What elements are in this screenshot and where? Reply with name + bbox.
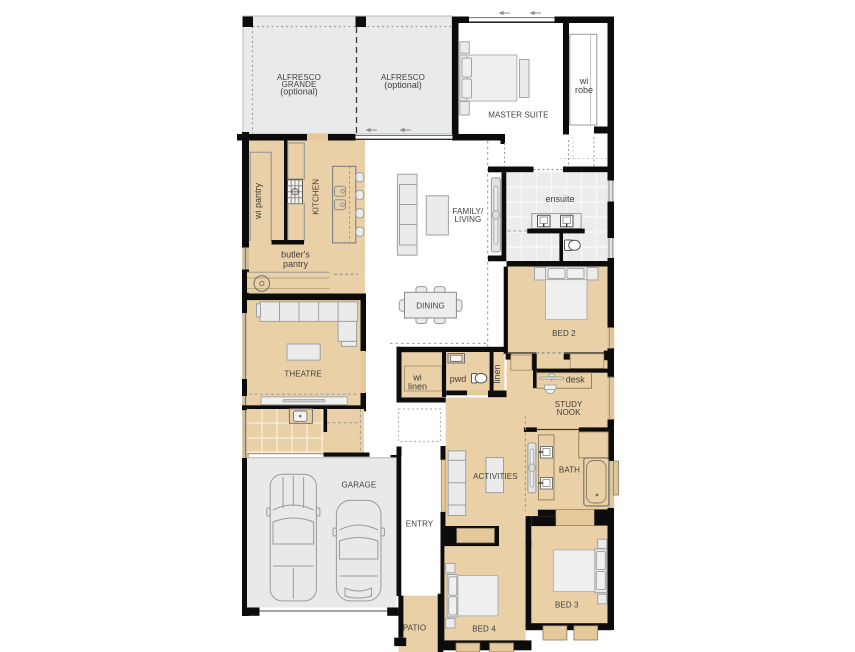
svg-text:linen: linen: [408, 382, 427, 392]
svg-text:ensuite: ensuite: [545, 194, 574, 204]
svg-text:KITCHEN: KITCHEN: [311, 179, 320, 215]
svg-text:ACTIVITIES: ACTIVITIES: [473, 472, 518, 481]
svg-text:MASTER SUITE: MASTER SUITE: [488, 111, 548, 120]
svg-text:GARAGE: GARAGE: [341, 480, 376, 489]
svg-text:(optional): (optional): [384, 80, 422, 90]
svg-text:THEATRE: THEATRE: [284, 370, 321, 379]
svg-text:pantry: pantry: [283, 259, 309, 269]
svg-text:desk: desk: [566, 375, 586, 385]
svg-text:ENTRY: ENTRY: [406, 519, 434, 528]
svg-text:BATH: BATH: [559, 465, 580, 474]
svg-text:robe: robe: [575, 85, 593, 95]
svg-text:BED 3: BED 3: [555, 601, 579, 610]
svg-text:linen: linen: [492, 364, 502, 383]
svg-text:PATIO: PATIO: [403, 624, 426, 633]
svg-text:BED 4: BED 4: [472, 625, 496, 634]
svg-text:pwd: pwd: [450, 374, 467, 384]
svg-text:LIVING: LIVING: [454, 215, 481, 224]
svg-text:DINING: DINING: [416, 302, 445, 311]
svg-text:wi pantry: wi pantry: [253, 182, 263, 220]
svg-text:BED 2: BED 2: [552, 329, 576, 338]
svg-text:NOOK: NOOK: [557, 408, 582, 417]
svg-text:(optional): (optional): [280, 86, 318, 96]
